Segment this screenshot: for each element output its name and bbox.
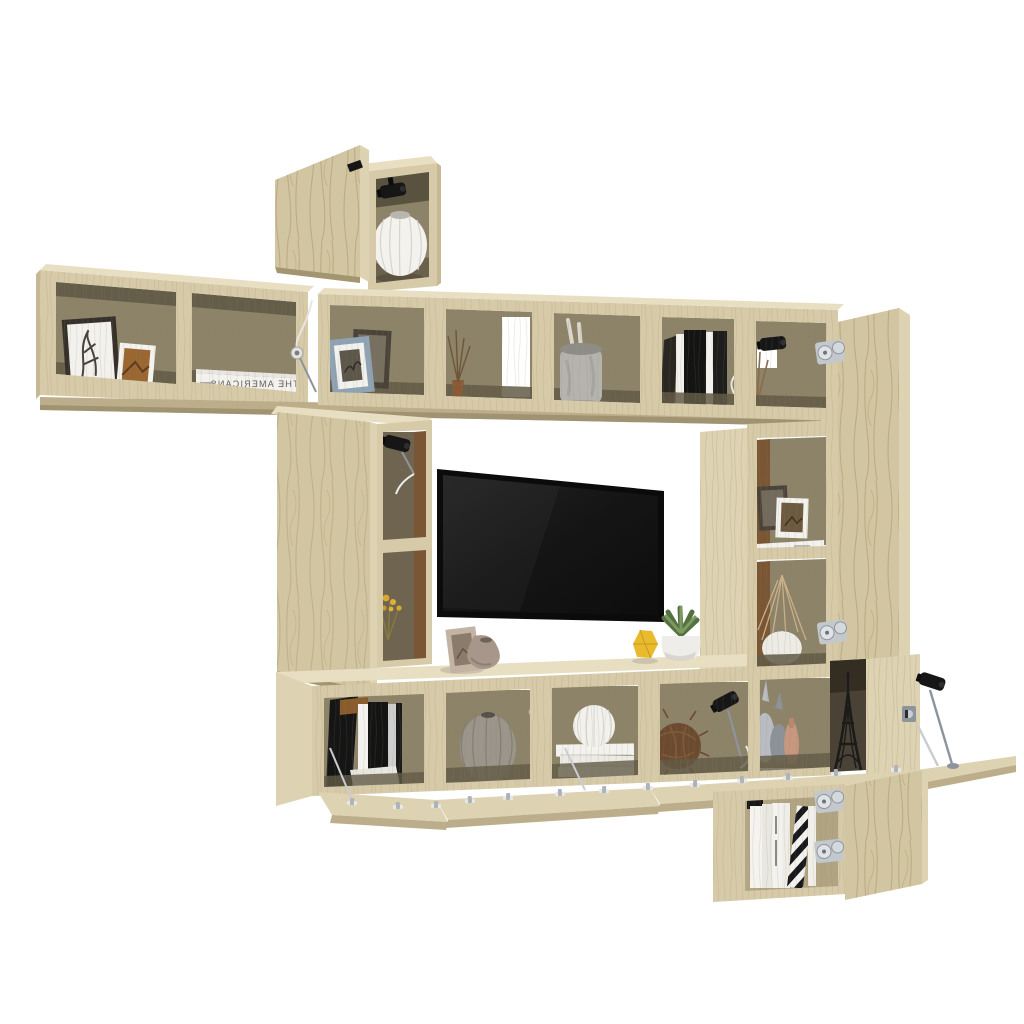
upper-left-shelf-module: THE AMERICANS xyxy=(36,264,316,406)
wall-bracket xyxy=(902,706,916,722)
wall-mounted-tv xyxy=(437,469,664,622)
hinge-chrome xyxy=(817,619,849,645)
hinge-chrome xyxy=(815,339,847,365)
cabinet-open-door xyxy=(845,770,928,900)
left-column-open-door xyxy=(277,412,377,696)
hinge-chrome xyxy=(814,838,845,863)
left-column-module xyxy=(271,406,432,696)
hinge-chrome xyxy=(814,788,845,813)
product-photo-tv-wall-unit: THE AMERICANS xyxy=(0,0,1024,1024)
central-top-row xyxy=(318,288,844,421)
